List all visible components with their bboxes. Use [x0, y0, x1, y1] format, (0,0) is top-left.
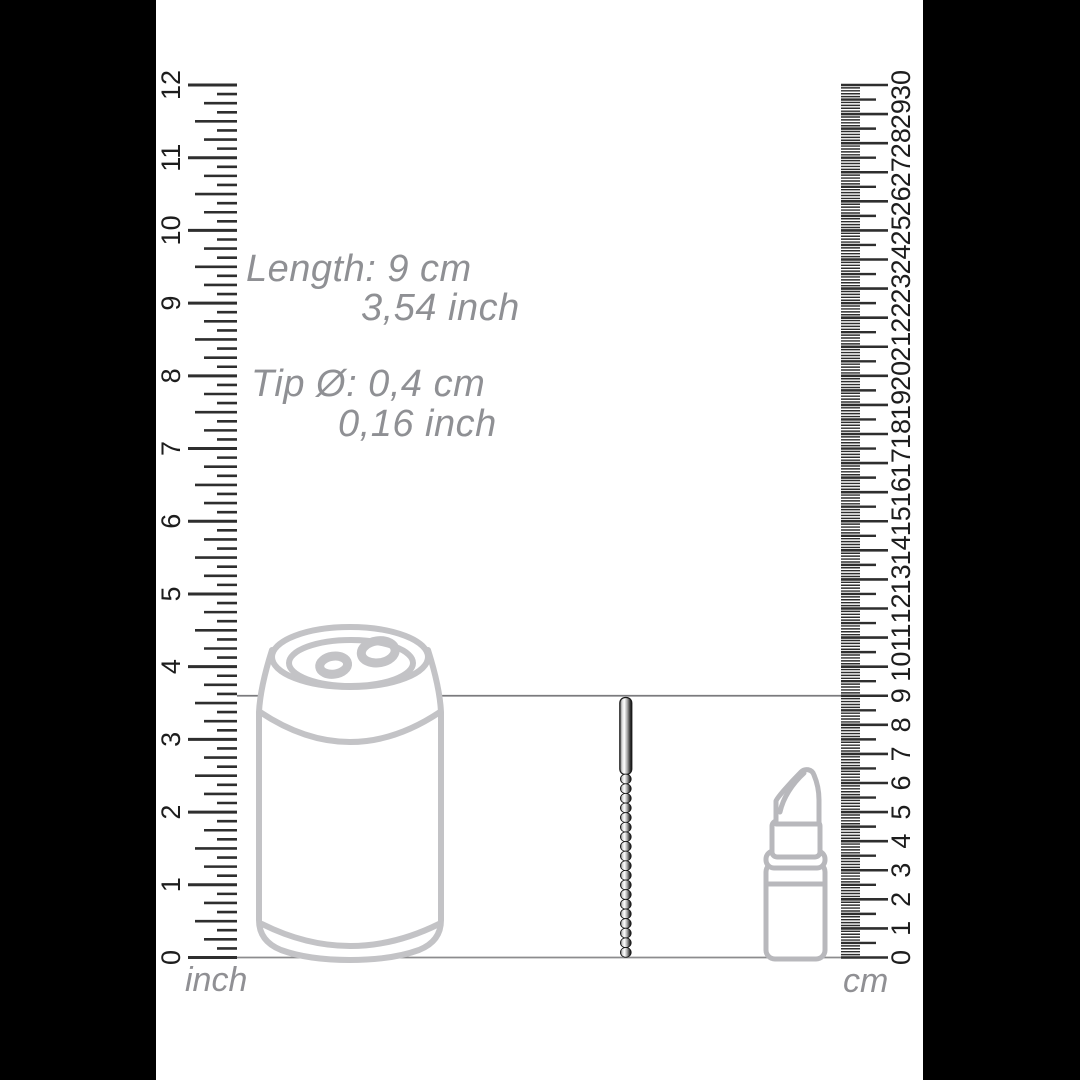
- cm-ruler-number: 9: [886, 688, 916, 703]
- inch-ruler-number: 11: [156, 144, 186, 172]
- rod-bead: [620, 899, 631, 909]
- cm-ruler-number: 20: [886, 361, 916, 391]
- cm-ruler-number: 17: [886, 448, 916, 478]
- soda-can-outline: [259, 627, 441, 960]
- rod-bead: [620, 880, 631, 890]
- cm-ruler-number: 5: [886, 805, 916, 820]
- rod-bead: [620, 832, 631, 842]
- cm-ruler: 0123456789101112131415161718192021222324…: [841, 70, 916, 965]
- rod-bead: [620, 928, 631, 938]
- rod-bead: [620, 890, 631, 900]
- cm-ruler-number: 12: [886, 593, 916, 623]
- cm-ruler-number: 6: [886, 775, 916, 790]
- inch-unit-label: inch: [185, 963, 247, 997]
- rod-bead: [620, 784, 631, 794]
- tip-diameter-inch-text: 0,16 inch: [338, 405, 497, 443]
- rod-bead: [620, 919, 631, 929]
- cm-ruler-number: 18: [886, 419, 916, 449]
- rod-bead: [620, 842, 631, 852]
- cm-ruler-number: 1: [886, 921, 916, 936]
- inch-ruler-number: 8: [156, 368, 186, 383]
- cm-ruler-number: 13: [886, 564, 916, 594]
- rod-bead: [620, 909, 631, 919]
- lipstick-base: [766, 863, 825, 959]
- inch-ruler-number: 0: [156, 950, 186, 965]
- cm-ruler-number: 19: [886, 390, 916, 420]
- inch-ruler: 0123456789101112: [156, 70, 237, 965]
- cm-ruler-number: 29: [886, 99, 916, 129]
- cm-ruler-number: 28: [886, 128, 916, 158]
- tip-diameter-cm-text: Tip Ø: 0,4 cm: [251, 365, 485, 403]
- inch-ruler-number: 5: [156, 586, 186, 601]
- cm-ruler-number: 23: [886, 274, 916, 304]
- can-body: [259, 650, 441, 960]
- cm-ruler-number: 25: [886, 215, 916, 245]
- size-diagram-canvas: 0123456789101112 01234567891011121314151…: [0, 0, 1080, 1080]
- rod-bead: [620, 774, 631, 784]
- cm-ruler-number: 8: [886, 717, 916, 732]
- product-size-diagram: 0123456789101112 01234567891011121314151…: [0, 0, 1080, 1080]
- inch-ruler-number: 2: [156, 805, 186, 820]
- cm-ruler-number: 14: [886, 535, 916, 565]
- cm-ruler-number: 21: [886, 332, 916, 362]
- cm-ruler-number: 22: [886, 303, 916, 333]
- inch-ruler-number: 4: [156, 659, 186, 674]
- cm-unit-label: cm: [843, 964, 888, 998]
- rod-bead: [620, 870, 631, 880]
- length-inch-text: 3,54 inch: [361, 289, 520, 327]
- inch-ruler-number: 12: [156, 70, 186, 100]
- rod-beads: [620, 774, 631, 957]
- cm-ruler-number: 4: [886, 834, 916, 849]
- rod-bead: [620, 938, 631, 948]
- inch-ruler-number: 9: [156, 296, 186, 311]
- cm-ruler-number: 30: [886, 70, 916, 100]
- rod-bead: [620, 861, 631, 871]
- lipstick-outline: [766, 770, 825, 959]
- cm-ruler-number: 26: [886, 186, 916, 216]
- rod-bead: [620, 947, 631, 957]
- rod-bead: [620, 813, 631, 823]
- cm-ruler-number: 27: [886, 157, 916, 187]
- cm-ruler-number: 0: [886, 950, 916, 965]
- cm-ruler-number: 10: [886, 652, 916, 682]
- inch-ruler-number: 10: [156, 215, 186, 245]
- rod-bead: [620, 793, 631, 803]
- cm-ruler-number: 15: [886, 506, 916, 536]
- cm-ruler-number: 2: [886, 892, 916, 907]
- rod-bead: [620, 851, 631, 861]
- rod-shaft: [620, 698, 632, 775]
- rod-bead: [620, 803, 631, 813]
- inch-ruler-number: 6: [156, 514, 186, 529]
- cm-ruler-number: 3: [886, 863, 916, 878]
- length-cm-text: Length: 9 cm: [246, 250, 472, 288]
- inch-ruler-number: 1: [156, 877, 186, 892]
- inch-ruler-number: 7: [156, 441, 186, 456]
- rod-bead: [620, 822, 631, 832]
- beaded-rod-product: [620, 698, 632, 958]
- cm-ruler-number: 16: [886, 477, 916, 507]
- cm-ruler-number: 11: [886, 624, 916, 652]
- cm-ruler-number: 7: [886, 746, 916, 761]
- cm-ruler-number: 24: [886, 244, 916, 274]
- inch-ruler-number: 3: [156, 732, 186, 747]
